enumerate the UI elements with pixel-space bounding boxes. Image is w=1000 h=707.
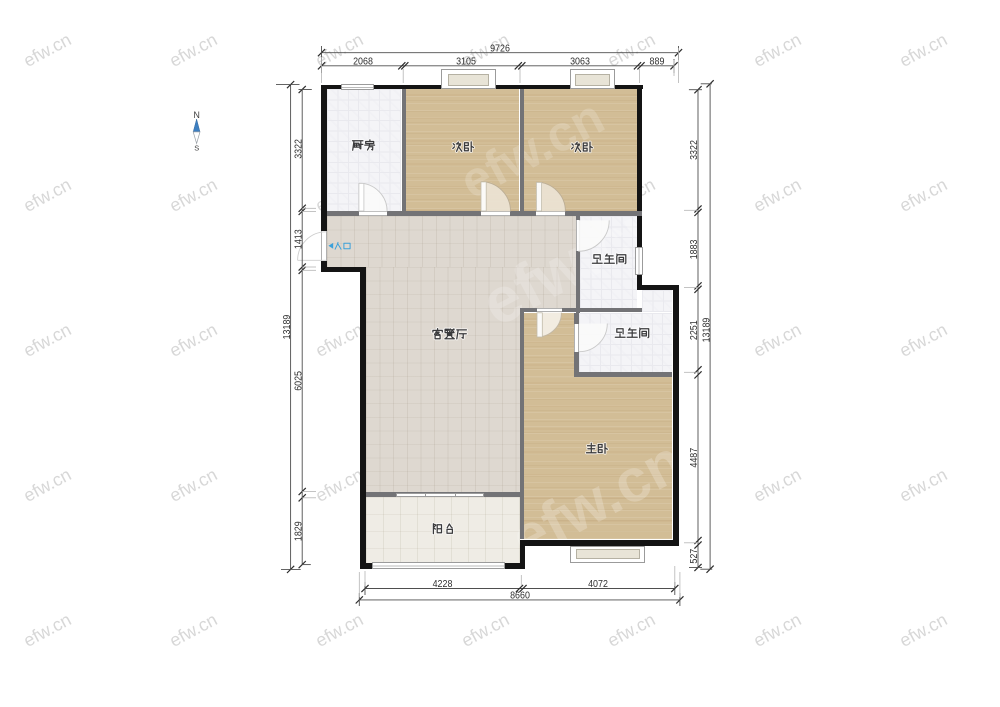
svg-text:1829: 1829	[292, 521, 304, 541]
svg-text:2068: 2068	[353, 55, 373, 67]
svg-text:3322: 3322	[688, 140, 700, 160]
svg-text:S: S	[194, 144, 199, 153]
svg-text:9726: 9726	[490, 42, 510, 54]
svg-text:889: 889	[650, 55, 665, 67]
svg-text:2251: 2251	[688, 320, 700, 340]
svg-text:4228: 4228	[433, 578, 453, 590]
svg-text:4487: 4487	[688, 448, 700, 468]
svg-text:6025: 6025	[292, 371, 304, 391]
svg-text:3322: 3322	[292, 139, 304, 159]
svg-text:1413: 1413	[292, 229, 304, 249]
svg-text:13189: 13189	[281, 314, 293, 339]
svg-text:3063: 3063	[570, 55, 590, 67]
svg-text:4072: 4072	[588, 578, 608, 590]
svg-text:1883: 1883	[688, 239, 700, 259]
svg-text:8660: 8660	[510, 590, 530, 602]
svg-text:3105: 3105	[456, 55, 476, 67]
svg-text:527: 527	[688, 549, 700, 564]
svg-text:13189: 13189	[700, 317, 712, 342]
